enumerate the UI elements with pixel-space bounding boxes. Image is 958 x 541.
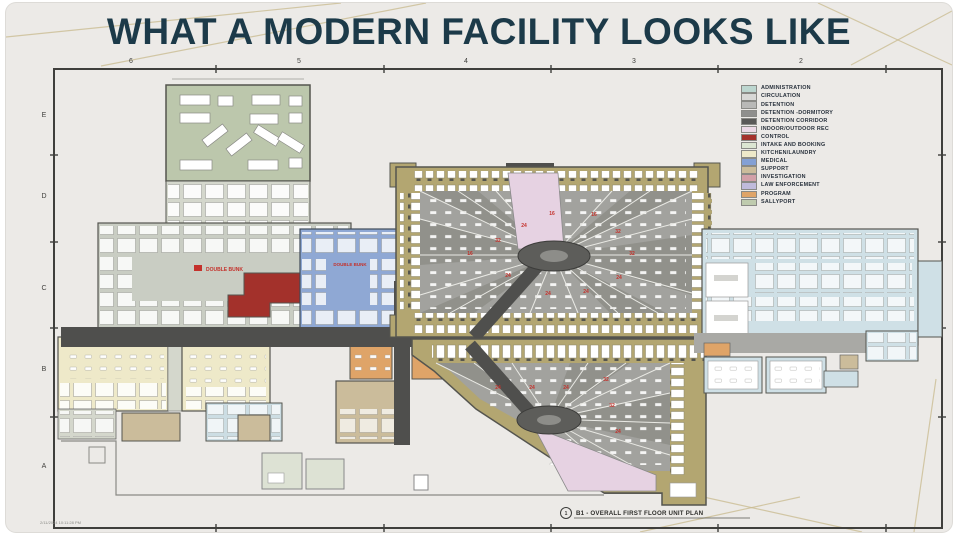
legend-label: MEDICAL — [761, 159, 787, 164]
legend-label: DETENTION — [761, 103, 794, 108]
svg-text:24: 24 — [505, 273, 511, 279]
svg-text:D: D — [41, 193, 46, 200]
legend-label: INTAKE AND BOOKING — [761, 143, 825, 148]
svg-text:E: E — [42, 112, 47, 119]
legend-swatch — [741, 182, 757, 190]
legend-item: CIRCULATION — [741, 93, 911, 101]
legend-swatch — [741, 93, 757, 101]
svg-text:6: 6 — [129, 58, 133, 65]
legend-item: CONTROL — [741, 134, 911, 142]
svg-text:A: A — [42, 463, 47, 470]
svg-text:3: 3 — [632, 58, 636, 65]
legend-item: INVESTIGATION — [741, 174, 911, 182]
legend-label: INVESTIGATION — [761, 175, 806, 180]
svg-text:B: B — [42, 366, 47, 373]
legend-swatch — [741, 191, 757, 199]
svg-text:2/11/2024 10:11:28 PM: 2/11/2024 10:11:28 PM — [40, 520, 81, 525]
legend-label: LAW ENFORCEMENT — [761, 183, 820, 188]
legend-label: CIRCULATION — [761, 94, 800, 99]
svg-text:32: 32 — [609, 403, 615, 409]
floor-plan: 6655443322EDCBA DOUBLE BUNKDOUBLE BUNK32… — [6, 3, 952, 532]
legend-swatch — [741, 158, 757, 166]
svg-text:24: 24 — [521, 223, 527, 229]
legend-label: SALLYPORT — [761, 200, 795, 205]
svg-text:32: 32 — [495, 238, 501, 244]
svg-text:16: 16 — [549, 211, 555, 217]
svg-text:24: 24 — [563, 385, 569, 391]
legend-swatch — [741, 150, 757, 158]
svg-text:24: 24 — [583, 289, 589, 295]
legend-label: CONTROL — [761, 135, 789, 140]
svg-text:32: 32 — [629, 251, 635, 257]
legend-item: SUPPORT — [741, 166, 911, 174]
legend-swatch — [741, 85, 757, 93]
legend-swatch — [741, 142, 757, 150]
legend-label: ADMINISTRATION — [761, 86, 811, 91]
legend-swatch — [741, 166, 757, 174]
svg-text:1: 1 — [565, 511, 568, 517]
legend-item: KITCHEN/LAUNDRY — [741, 150, 911, 158]
legend: ADMINISTRATIONCIRCULATIONDETENTIONDETENT… — [741, 85, 911, 206]
svg-text:32: 32 — [603, 377, 609, 383]
legend-swatch — [741, 110, 757, 118]
legend-label: SUPPORT — [761, 167, 789, 172]
svg-text:24: 24 — [495, 385, 501, 391]
svg-text:B1 - OVERALL FIRST FLOOR UNIT: B1 - OVERALL FIRST FLOOR UNIT PLAN — [576, 510, 704, 517]
svg-text:24: 24 — [615, 429, 621, 435]
legend-item: MEDICAL — [741, 158, 911, 166]
svg-text:DOUBLE BUNK: DOUBLE BUNK — [333, 262, 367, 267]
legend-label: INDOOR/OUTDOOR REC — [761, 127, 829, 132]
legend-label: DETENTION -DORMITORY — [761, 111, 833, 116]
legend-label: PROGRAM — [761, 192, 791, 197]
legend-item: PROGRAM — [741, 190, 911, 198]
legend-item: LAW ENFORCEMENT — [741, 182, 911, 190]
legend-swatch — [741, 199, 757, 207]
svg-text:16: 16 — [591, 212, 597, 218]
svg-text:32: 32 — [615, 229, 621, 235]
drawing-caption: 1B1 - OVERALL FIRST FLOOR UNIT PLAN2/11/… — [40, 508, 750, 526]
svg-text:2: 2 — [799, 58, 803, 65]
slide: WHAT A MODERN FACILITY LOOKS LIKE 665544… — [6, 3, 952, 532]
svg-text:5: 5 — [297, 58, 301, 65]
svg-text:24: 24 — [616, 275, 622, 281]
legend-item: DETENTION CORRIDOR — [741, 117, 911, 125]
legend-item: INDOOR/OUTDOOR REC — [741, 125, 911, 133]
legend-item: DETENTION -DORMITORY — [741, 109, 911, 117]
svg-text:C: C — [41, 285, 46, 292]
legend-swatch — [741, 134, 757, 142]
legend-item: INTAKE AND BOOKING — [741, 142, 911, 150]
legend-label: DETENTION CORRIDOR — [761, 119, 828, 124]
legend-swatch — [741, 174, 757, 182]
legend-swatch — [741, 118, 757, 126]
svg-text:24: 24 — [529, 385, 535, 391]
legend-item: DETENTION — [741, 101, 911, 109]
legend-item: ADMINISTRATION — [741, 85, 911, 93]
svg-text:DOUBLE BUNK: DOUBLE BUNK — [206, 267, 243, 273]
legend-label: KITCHEN/LAUNDRY — [761, 151, 816, 156]
legend-swatch — [741, 101, 757, 109]
svg-text:24: 24 — [545, 291, 551, 297]
svg-text:4: 4 — [464, 58, 468, 65]
svg-text:16: 16 — [467, 251, 473, 257]
legend-swatch — [741, 126, 757, 134]
legend-item: SALLYPORT — [741, 198, 911, 206]
